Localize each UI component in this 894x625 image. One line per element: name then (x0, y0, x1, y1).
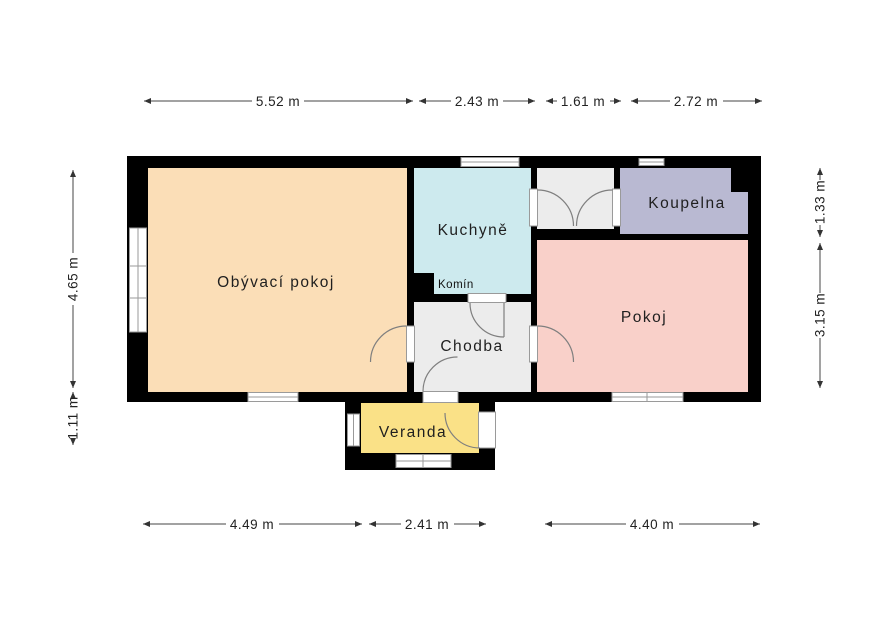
dimension-top-3: 1.61 m (546, 94, 621, 109)
dimension-right-2: 3.15 m (813, 243, 828, 388)
label-living-room: Obývací pokoj (217, 274, 335, 291)
label-chimney: Komín (438, 279, 474, 291)
window-living-left (130, 228, 147, 332)
dimension-label: 1.61 m (561, 94, 605, 109)
chimney-block (407, 273, 434, 294)
dimension-label: 2.43 m (455, 94, 499, 109)
label-hallway: Chodba (440, 338, 503, 355)
window-bathroom-top (639, 159, 664, 166)
dimension-label: 4.40 m (630, 517, 674, 532)
dimensions-right: 1.33 m 3.15 m (813, 168, 828, 388)
dimensions-top: 5.52 m 2.43 m 1.61 m 2.72 m (144, 94, 762, 109)
label-room: Pokoj (621, 309, 667, 326)
floor-plan-canvas: Obývací pokoj Kuchyně Komín Koupelna Pok… (0, 0, 894, 625)
dimension-top-4: 2.72 m (631, 94, 762, 109)
dimension-bottom-2: 2.41 m (369, 517, 486, 532)
dimension-label: 3.15 m (813, 293, 828, 337)
dimensions-left: 4.65 m 1.11 m (66, 170, 81, 445)
dimension-left-1: 4.65 m (66, 170, 81, 388)
window-veranda-left (348, 414, 360, 446)
window-veranda-bottom (396, 455, 451, 468)
dimension-left-2: 1.11 m (66, 392, 81, 445)
dimension-label: 5.52 m (256, 94, 300, 109)
dimension-label: 2.41 m (405, 517, 449, 532)
dimension-bottom-1: 4.49 m (143, 517, 362, 532)
label-veranda: Veranda (379, 424, 447, 441)
label-bathroom: Koupelna (648, 195, 726, 212)
dimension-label: 4.65 m (66, 257, 81, 301)
dimension-top-2: 2.43 m (419, 94, 535, 109)
dimension-right-1: 1.33 m (813, 168, 828, 237)
window-room-bottom (612, 393, 683, 402)
label-kitchen: Kuchyně (438, 222, 509, 239)
dimension-label: 1.33 m (813, 180, 828, 224)
dimension-bottom-3: 4.40 m (545, 517, 760, 532)
dimension-label: 2.72 m (674, 94, 718, 109)
floor-plan: Obývací pokoj Kuchyně Komín Koupelna Pok… (0, 0, 894, 625)
dimension-label: 1.11 m (66, 396, 81, 439)
dimension-label: 4.49 m (230, 517, 274, 532)
dimensions-bottom: 4.49 m 2.41 m 4.40 m (143, 517, 760, 532)
room-vestibule (537, 168, 614, 229)
dimension-top-1: 5.52 m (144, 94, 413, 109)
window-kitchen-top (461, 158, 519, 167)
window-living-bottom (248, 393, 298, 402)
